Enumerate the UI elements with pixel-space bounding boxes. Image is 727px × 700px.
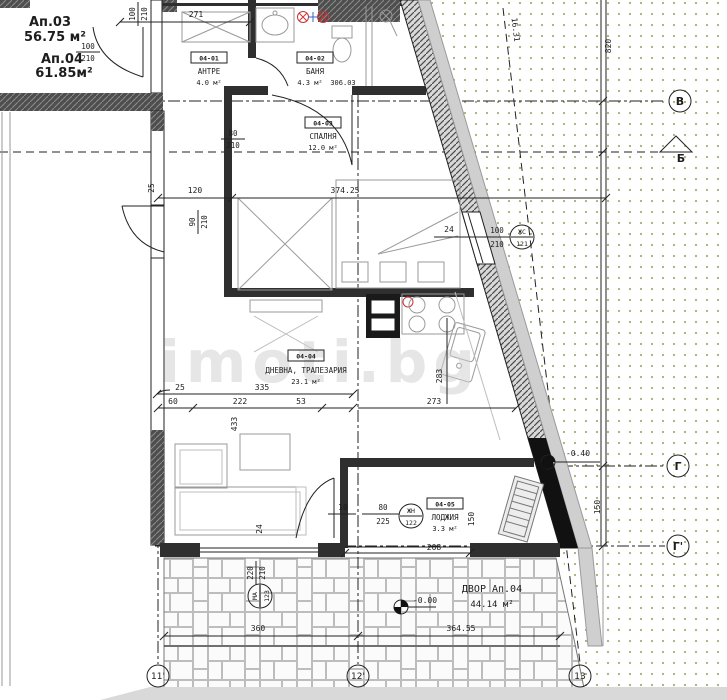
- svg-text:225: 225: [376, 517, 390, 526]
- wall-hall-left: [151, 0, 162, 93]
- dim-283: 283: [435, 369, 444, 384]
- dim-60: 60: [168, 397, 178, 406]
- dim-24-window: 24: [444, 225, 454, 234]
- svg-text:04-01: 04-01: [199, 55, 219, 63]
- level-000-text: -0.00: [413, 596, 437, 605]
- floor-plan-sheet: В Б Г Г' 11' 12' 13: [0, 0, 727, 700]
- ap03-area: 56.75 м²: [24, 30, 86, 45]
- dim-433: 433: [230, 417, 239, 432]
- wall-party: [0, 93, 163, 111]
- tag-ma: МА 123: [248, 584, 272, 608]
- dim-271: 271: [189, 10, 204, 19]
- svg-text:220: 220: [246, 566, 255, 580]
- svg-text:СПАЛНЯ: СПАЛНЯ: [309, 132, 337, 141]
- dim-360: 360: [251, 624, 266, 633]
- svg-text:44.14 м²: 44.14 м²: [470, 600, 513, 610]
- svg-text:210: 210: [226, 141, 240, 150]
- dim-273: 273: [427, 397, 442, 406]
- svg-text:04-05: 04-05: [435, 501, 455, 509]
- axis-label-v: В: [676, 95, 684, 108]
- svg-text:ЛОДЖИЯ: ЛОДЖИЯ: [431, 513, 459, 522]
- tag-zhs: ЖС 121: [510, 225, 534, 249]
- wall-living-left-seg1: [151, 111, 164, 131]
- dim-335: 335: [255, 383, 270, 392]
- svg-text:ДВОР Ап.04: ДВОР Ап.04: [462, 584, 522, 595]
- svg-text:121: 121: [516, 240, 528, 248]
- dim-120: 120: [188, 186, 203, 195]
- svg-text:90: 90: [188, 217, 197, 227]
- svg-text:80: 80: [378, 503, 388, 512]
- wall-bedroom-bottom: [224, 288, 474, 297]
- dim-208: 208: [427, 543, 442, 552]
- svg-text:ЖС: ЖС: [518, 228, 526, 236]
- dim-150-g: 150: [593, 500, 602, 515]
- tag-zhn: ЖН 122: [399, 504, 423, 528]
- svg-text:ДНЕВНА, ТРАПЕЗАРИЯ: ДНЕВНА, ТРАПЕЗАРИЯ: [265, 366, 347, 375]
- dim-10: 10: [338, 503, 348, 512]
- svg-text:100: 100: [490, 226, 504, 235]
- wall-top-left-stub: [0, 0, 30, 8]
- svg-text:04-04: 04-04: [296, 353, 316, 361]
- svg-text:80: 80: [228, 129, 238, 138]
- gas-point-icon: [403, 297, 413, 307]
- wall-bottom-seg1: [160, 543, 200, 557]
- svg-text:123: 123: [263, 590, 271, 602]
- svg-text:МА: МА: [251, 592, 259, 600]
- floor-plan-drawing: В Б Г Г' 11' 12' 13: [0, 0, 727, 700]
- level-040-text: -0.40: [566, 449, 590, 458]
- wall-top-block: [318, 0, 400, 22]
- axis-label-b: Б: [677, 152, 685, 165]
- ap04-area: 61.85м²: [35, 66, 92, 81]
- svg-text:3.3 м²: 3.3 м²: [432, 525, 457, 533]
- axis-label-g: Г: [674, 460, 681, 473]
- axis-label-11: 11': [151, 672, 165, 682]
- svg-text:04-02: 04-02: [305, 55, 325, 63]
- axis-label-g-prime: Г': [673, 540, 683, 553]
- wall-loggia-top: [340, 458, 534, 467]
- dim-24-living: 24: [255, 524, 264, 534]
- svg-text:04-03: 04-03: [313, 120, 333, 128]
- svg-text:4.0 м²: 4.0 м²: [196, 79, 221, 87]
- svg-text:23.1 м²: 23.1 м²: [291, 378, 321, 386]
- svg-text:БАНЯ: БАНЯ: [306, 67, 325, 76]
- window-south-gap: [200, 545, 318, 555]
- dim-25: 25: [175, 383, 185, 392]
- svg-text:210: 210: [490, 240, 504, 249]
- svg-text:ЖН: ЖН: [407, 507, 415, 515]
- svg-text:12.0 м²: 12.0 м²: [308, 144, 338, 152]
- svg-text:210: 210: [140, 7, 149, 21]
- axis-label-13: 13: [574, 672, 585, 682]
- dim-25-left: 25: [147, 183, 156, 193]
- wall-bottom-seg3: [470, 543, 560, 557]
- dim-222: 222: [233, 397, 248, 406]
- svg-text:АНТРЕ: АНТРЕ: [198, 67, 221, 76]
- wall-bottom-seg2: [318, 543, 345, 557]
- svg-text:4.3 м²: 4.3 м²: [297, 79, 322, 87]
- axis-label-12: 12': [351, 672, 365, 682]
- dim-53: 53: [296, 397, 306, 406]
- ap03-name: Ап.03: [29, 15, 71, 30]
- room-banya-extra: 306.03: [330, 79, 355, 87]
- dim-364-55: 364.55: [447, 624, 476, 633]
- svg-text:210: 210: [258, 566, 267, 580]
- yard-paving: [164, 558, 584, 688]
- wall-bath-bedroom-right: [352, 86, 426, 95]
- dim-374-25: 374.25: [331, 186, 360, 195]
- svg-text:122: 122: [405, 519, 417, 527]
- dim-150-loggia: 150: [467, 512, 476, 527]
- ap04-name: Ап.04: [41, 52, 83, 67]
- wall-living-left-seg2: [151, 430, 164, 545]
- dim-820: 820: [604, 39, 613, 54]
- svg-text:210: 210: [81, 54, 95, 63]
- svg-text:100: 100: [128, 7, 137, 21]
- wall-hall-bath: [248, 0, 256, 58]
- wall-bedroom-left: [224, 86, 232, 296]
- svg-text:210: 210: [200, 215, 209, 229]
